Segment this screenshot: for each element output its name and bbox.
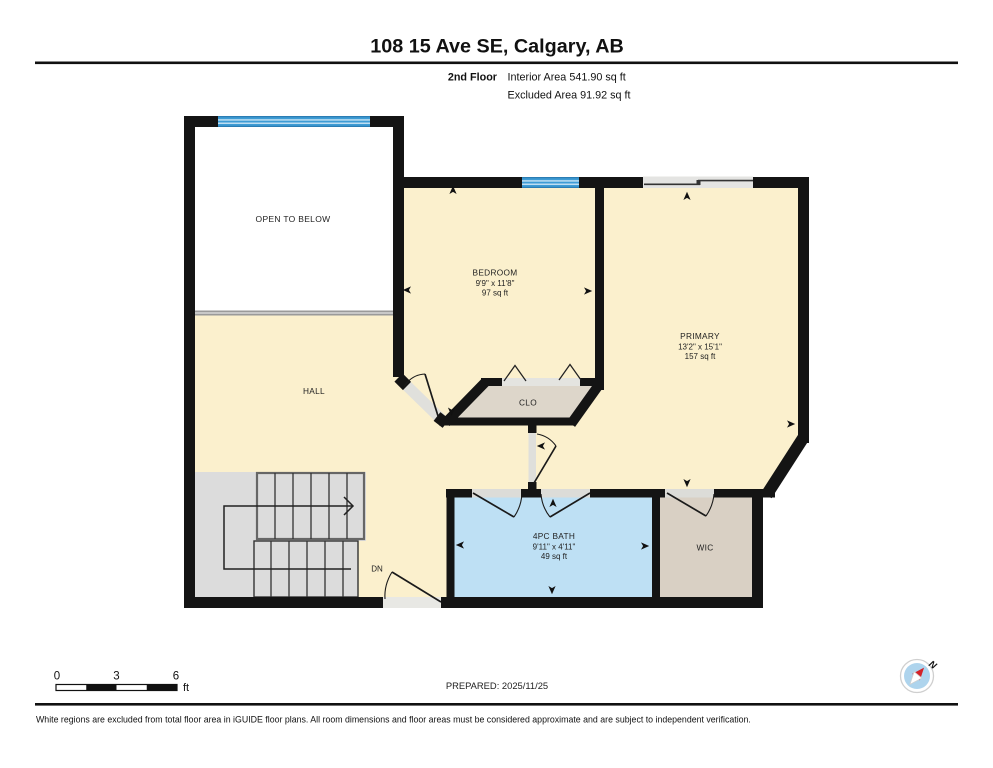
svg-text:13'2" x 15'1": 13'2" x 15'1" [678, 343, 722, 352]
svg-text:9'9" x 11'8": 9'9" x 11'8" [476, 279, 515, 288]
svg-text:Excluded Area 91.92 sq ft: Excluded Area 91.92 sq ft [508, 90, 631, 102]
svg-text:0: 0 [54, 671, 60, 683]
svg-text:6: 6 [173, 671, 179, 683]
svg-text:PRIMARY: PRIMARY [680, 331, 720, 341]
svg-text:PREPARED: 2025/11/25: PREPARED: 2025/11/25 [446, 680, 548, 691]
svg-text:BEDROOM: BEDROOM [473, 268, 518, 278]
svg-text:3: 3 [113, 671, 119, 683]
svg-text:White regions are excluded fro: White regions are excluded from total fl… [36, 715, 751, 725]
svg-text:HALL: HALL [303, 386, 325, 396]
svg-text:CLO: CLO [519, 398, 537, 408]
svg-text:108 15 Ave SE, Calgary, AB: 108 15 Ave SE, Calgary, AB [370, 36, 624, 58]
svg-text:DN: DN [371, 565, 383, 574]
svg-text:49 sq ft: 49 sq ft [541, 552, 568, 561]
svg-text:157 sq ft: 157 sq ft [685, 352, 716, 361]
svg-text:WIC: WIC [696, 543, 713, 553]
svg-text:2nd Floor: 2nd Floor [448, 72, 498, 84]
svg-text:9'11" x 4'11": 9'11" x 4'11" [533, 543, 576, 552]
svg-text:OPEN TO BELOW: OPEN TO BELOW [256, 214, 331, 224]
svg-text:97 sq ft: 97 sq ft [482, 289, 509, 298]
svg-text:ft: ft [183, 682, 189, 694]
svg-text:4PC BATH: 4PC BATH [533, 531, 575, 541]
svg-text:Interior Area 541.90 sq ft: Interior Area 541.90 sq ft [508, 72, 626, 84]
